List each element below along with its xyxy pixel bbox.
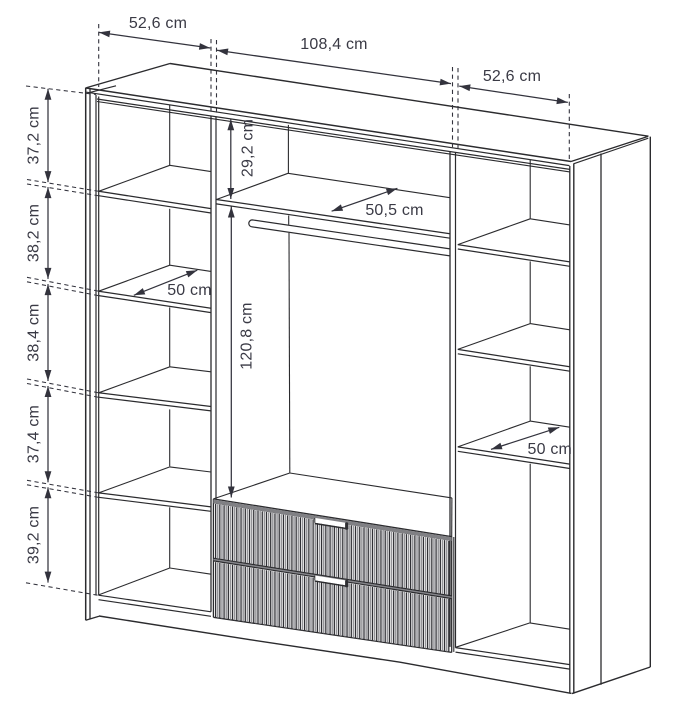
svg-text:50,5 cm: 50,5 cm (365, 202, 423, 219)
svg-text:39,2 cm: 39,2 cm (26, 506, 43, 564)
svg-text:52,6 cm: 52,6 cm (129, 15, 187, 32)
svg-text:50 cm: 50 cm (528, 441, 573, 458)
svg-text:29,2 cm: 29,2 cm (240, 119, 257, 177)
svg-text:108,4 cm: 108,4 cm (300, 36, 367, 53)
svg-text:38,2 cm: 38,2 cm (26, 204, 43, 262)
svg-text:37,2 cm: 37,2 cm (26, 106, 43, 164)
svg-text:52,6 cm: 52,6 cm (483, 68, 541, 85)
svg-text:37,4 cm: 37,4 cm (26, 405, 43, 463)
svg-text:38,4 cm: 38,4 cm (26, 303, 43, 361)
svg-text:50 cm: 50 cm (167, 282, 212, 299)
svg-text:120,8 cm: 120,8 cm (239, 302, 256, 369)
